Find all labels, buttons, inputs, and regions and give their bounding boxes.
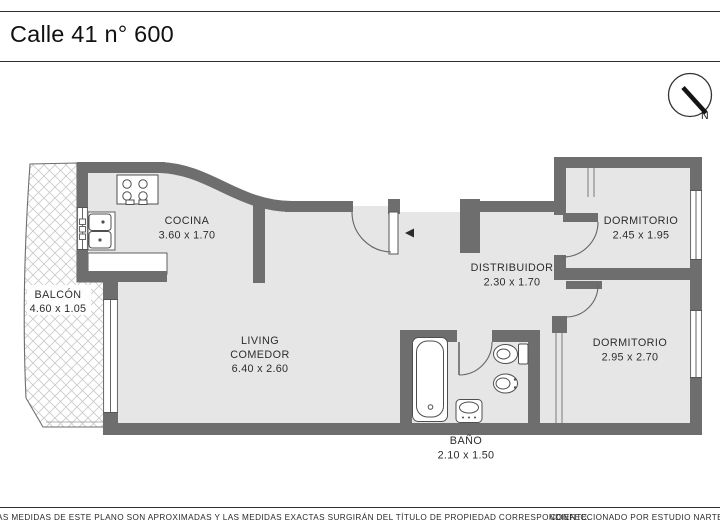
dims-balcon: 4.60 x 1.05 (30, 303, 87, 315)
dims-cocina: 3.60 x 1.70 (159, 230, 216, 242)
footer-credit: CONFECCIONADO POR ESTUDIO NARTE (550, 513, 720, 522)
footer-disclaimer: AS MEDIDAS DE ESTE PLANO SON APROXIMADAS… (0, 513, 590, 522)
floor-plan-sheet: { "title": "Calle 41 n° 600", "compass":… (0, 0, 720, 532)
wall-bath-right (528, 330, 540, 435)
label-dormitorio-2: DORMITORIO (593, 337, 667, 349)
floor-plan-drawing: COCINA 3.60 x 1.70 BALCÓN 4.60 x 1.05 LI… (0, 0, 720, 532)
wall-left-upper (77, 162, 88, 207)
wall-bedrooms-divider (554, 268, 702, 280)
wall-living-top (285, 201, 353, 212)
toilet (494, 344, 529, 364)
window-bedroom2 (690, 310, 702, 378)
wall-kitchen-top (77, 162, 165, 173)
dims-dormitorio-1: 2.45 x 1.95 (613, 230, 670, 242)
label-balcon: BALCÓN (34, 288, 81, 301)
label-bano: BAÑO (450, 434, 482, 447)
window-bedroom1 (690, 190, 702, 260)
label-living-line2: COMEDOR (230, 349, 290, 361)
wall-bedroom2-block (552, 316, 567, 333)
wall-kitchen-right (253, 203, 265, 283)
dims-dormitorio-2: 2.95 x 2.70 (602, 352, 659, 364)
apartment-floor (77, 157, 702, 435)
wall-living-left-top (103, 271, 118, 299)
wall-bedroom1-top (554, 157, 702, 168)
wall-living-left-bottom (103, 413, 118, 435)
kitchen-sink (89, 214, 111, 248)
dims-bano: 2.10 x 1.50 (438, 450, 495, 462)
window-hardware-marks (80, 219, 86, 240)
wall-distribuidor-top (460, 201, 566, 212)
bidet (494, 374, 518, 393)
door-leaf-bedroom2 (566, 281, 602, 289)
label-cocina: COCINA (165, 215, 210, 227)
bathroom-sink (456, 400, 482, 423)
bathtub (413, 338, 448, 422)
label-dormitorio-1: DORMITORIO (604, 215, 678, 227)
footer-divider-line (0, 507, 720, 508)
wall-kitchen-stub (77, 271, 167, 282)
compass-north-label: N (701, 110, 709, 122)
dims-distribuidor: 2.30 x 1.70 (484, 277, 541, 289)
stove (117, 175, 158, 205)
wall-bath-left (400, 330, 412, 435)
entrance-door-leaf (389, 212, 398, 254)
window-living (103, 299, 118, 413)
door-leaf-bedroom1 (563, 213, 598, 222)
label-distribuidor: DISTRIBUIDOR (471, 262, 554, 274)
north-compass: N (669, 74, 712, 123)
dims-living: 6.40 x 2.60 (232, 363, 289, 375)
label-living-line1: LIVING (241, 335, 279, 347)
